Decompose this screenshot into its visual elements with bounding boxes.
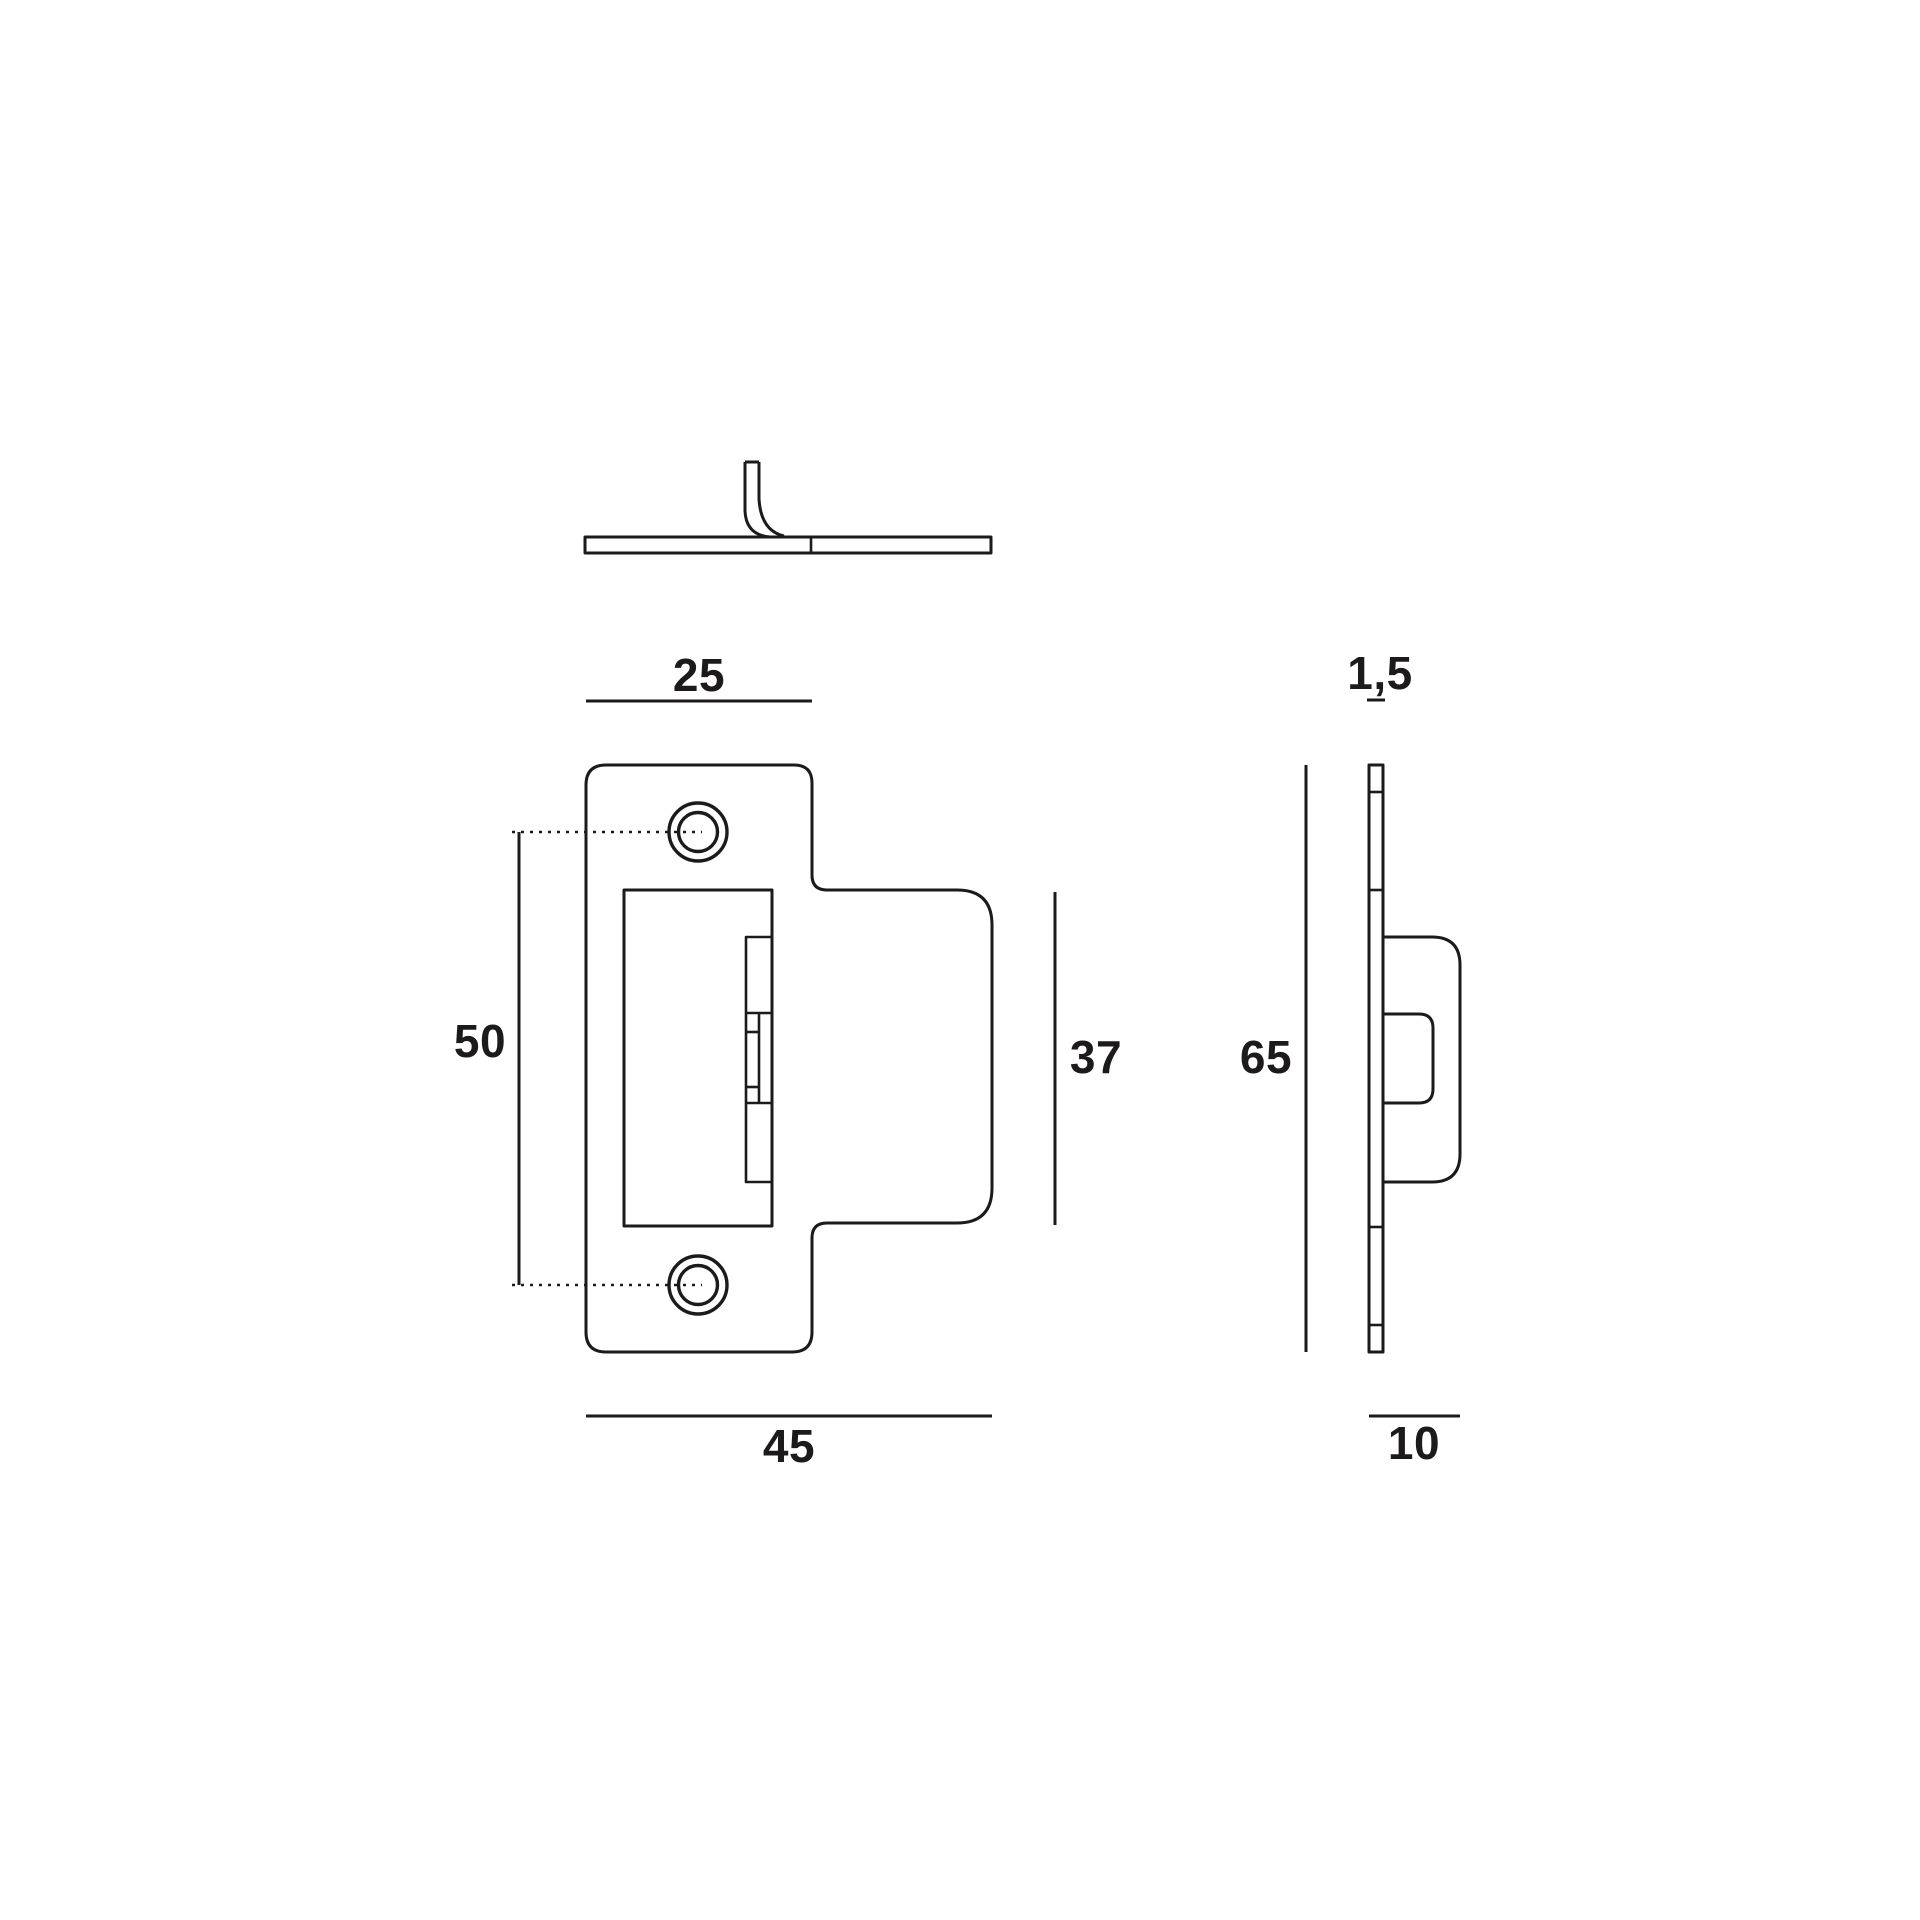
dimension-label-hole-spacing: 50: [454, 1015, 506, 1067]
top-view: [585, 462, 991, 553]
side-view-keeper-pocket-outline: [1383, 1014, 1433, 1103]
top-view-plate-edge: [585, 537, 991, 553]
top-view-lip-inner-edge: [759, 462, 784, 536]
strike-plate-technical-drawing: 25 45 50 37 1,5 65 10: [0, 0, 1920, 1920]
side-view-keeper-bump-outline: [1383, 937, 1460, 1182]
front-view-latch-cutout: [624, 890, 772, 1226]
dimension-label-top-width: 25: [673, 649, 725, 701]
front-view-plate-outline: [586, 765, 992, 1352]
dimension-label-depth: 10: [1388, 1417, 1440, 1469]
dimension-label-thickness: 1,5: [1347, 647, 1412, 699]
dimension-label-tab-height: 37: [1070, 1031, 1122, 1083]
dimension-label-overall-width: 45: [763, 1420, 815, 1472]
dimension-label-overall-height: 65: [1240, 1031, 1292, 1083]
front-view: [512, 765, 992, 1352]
side-view-plate-edge: [1369, 765, 1383, 1352]
side-view: [1369, 765, 1460, 1352]
dimensions: 25 45 50 37 1,5 65 10: [454, 647, 1460, 1472]
technical-drawing-page: 25 45 50 37 1,5 65 10: [0, 0, 1920, 1920]
